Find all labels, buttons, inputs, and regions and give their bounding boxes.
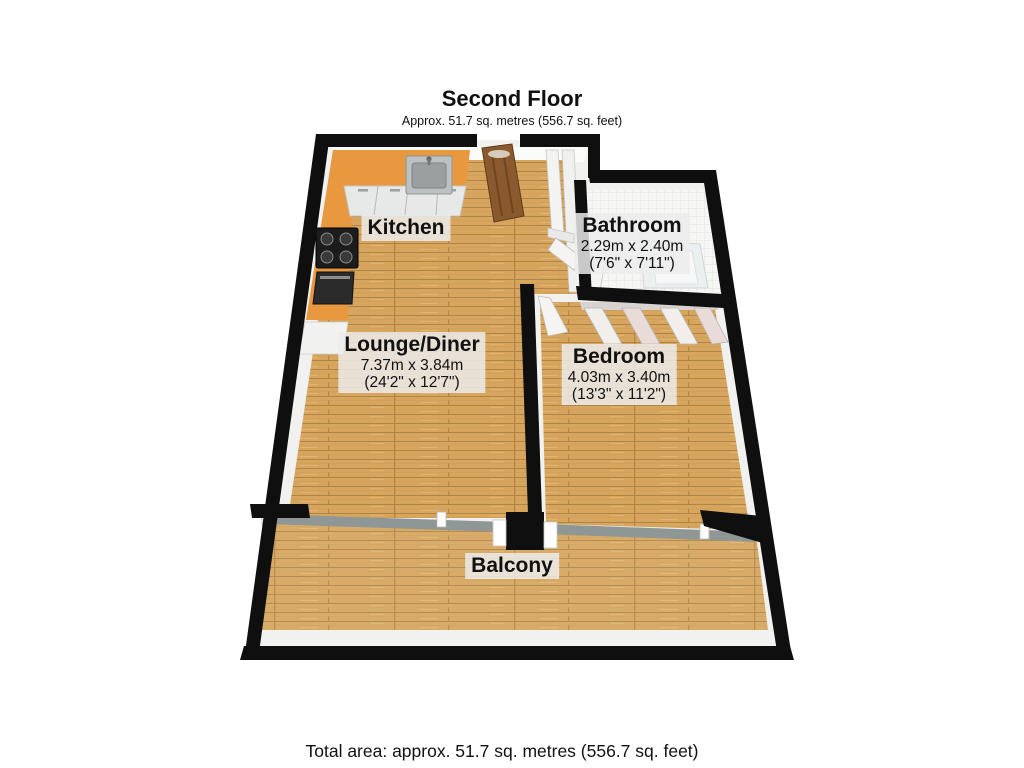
lounge-name: Lounge/Diner xyxy=(344,333,479,357)
page-title: Second Floor xyxy=(442,86,583,112)
wall-bathroom-top xyxy=(588,170,718,183)
bathroom-dimensions-metric: 2.29m x 2.40m xyxy=(581,238,684,256)
kitchen-oven xyxy=(313,272,354,304)
lounge-dimensions-imperial: (24'2" x 12'7") xyxy=(344,374,479,392)
wall-top-left xyxy=(316,134,477,147)
bedroom-dimensions-metric: 4.03m x 3.40m xyxy=(568,369,671,387)
bathroom-label: Bathroom 2.29m x 2.40m (7'6" x 7'11") xyxy=(575,213,690,274)
floor-plan-page: Second Floor Approx. 51.7 sq. metres (55… xyxy=(0,0,1024,768)
kitchen-label: Kitchen xyxy=(361,215,450,241)
kitchen-hob xyxy=(316,228,358,268)
kitchen-sink xyxy=(406,156,452,194)
wall-balcony-stub-left xyxy=(250,504,310,518)
page-subtitle: Approx. 51.7 sq. metres (556.7 sq. feet) xyxy=(402,114,622,128)
bathroom-name: Bathroom xyxy=(581,214,684,238)
balcony-label: Balcony xyxy=(465,553,559,579)
bedroom-label: Bedroom 4.03m x 3.40m (13'3" x 11'2") xyxy=(562,344,677,405)
kitchen-name: Kitchen xyxy=(367,216,444,240)
bedroom-name: Bedroom xyxy=(568,345,671,369)
bathroom-dimensions-imperial: (7'6" x 7'11") xyxy=(581,255,684,273)
balcony-door-threshold xyxy=(506,512,544,550)
balcony-name: Balcony xyxy=(471,554,553,578)
lounge-label: Lounge/Diner 7.37m x 3.84m (24'2" x 12'7… xyxy=(338,332,485,393)
total-area-text: Total area: approx. 51.7 sq. metres (556… xyxy=(306,741,699,762)
wall-bottom xyxy=(240,646,794,660)
bedroom-dimensions-imperial: (13'3" x 11'2") xyxy=(568,386,671,404)
lounge-dimensions-metric: 7.37m x 3.84m xyxy=(344,357,479,375)
